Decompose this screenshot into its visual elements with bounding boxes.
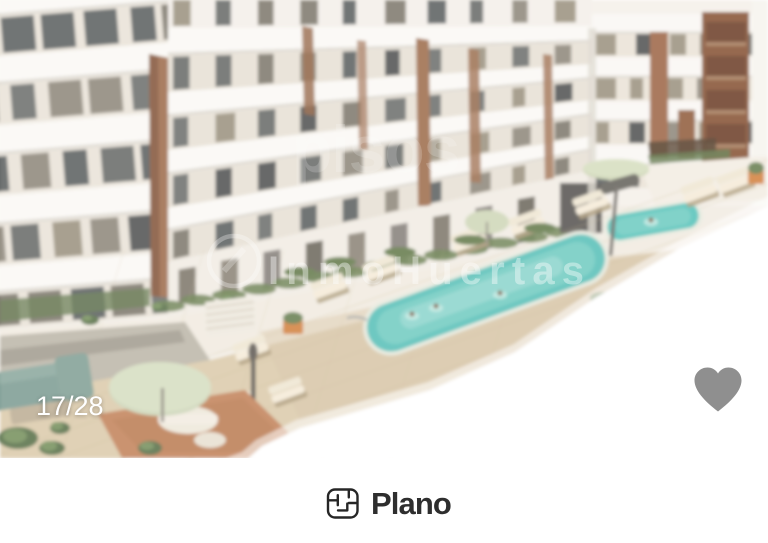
svg-text:pisos: pisos [292, 112, 459, 186]
svg-text:17/28: 17/28 [36, 391, 104, 421]
svg-text:Plano: Plano [371, 486, 451, 521]
